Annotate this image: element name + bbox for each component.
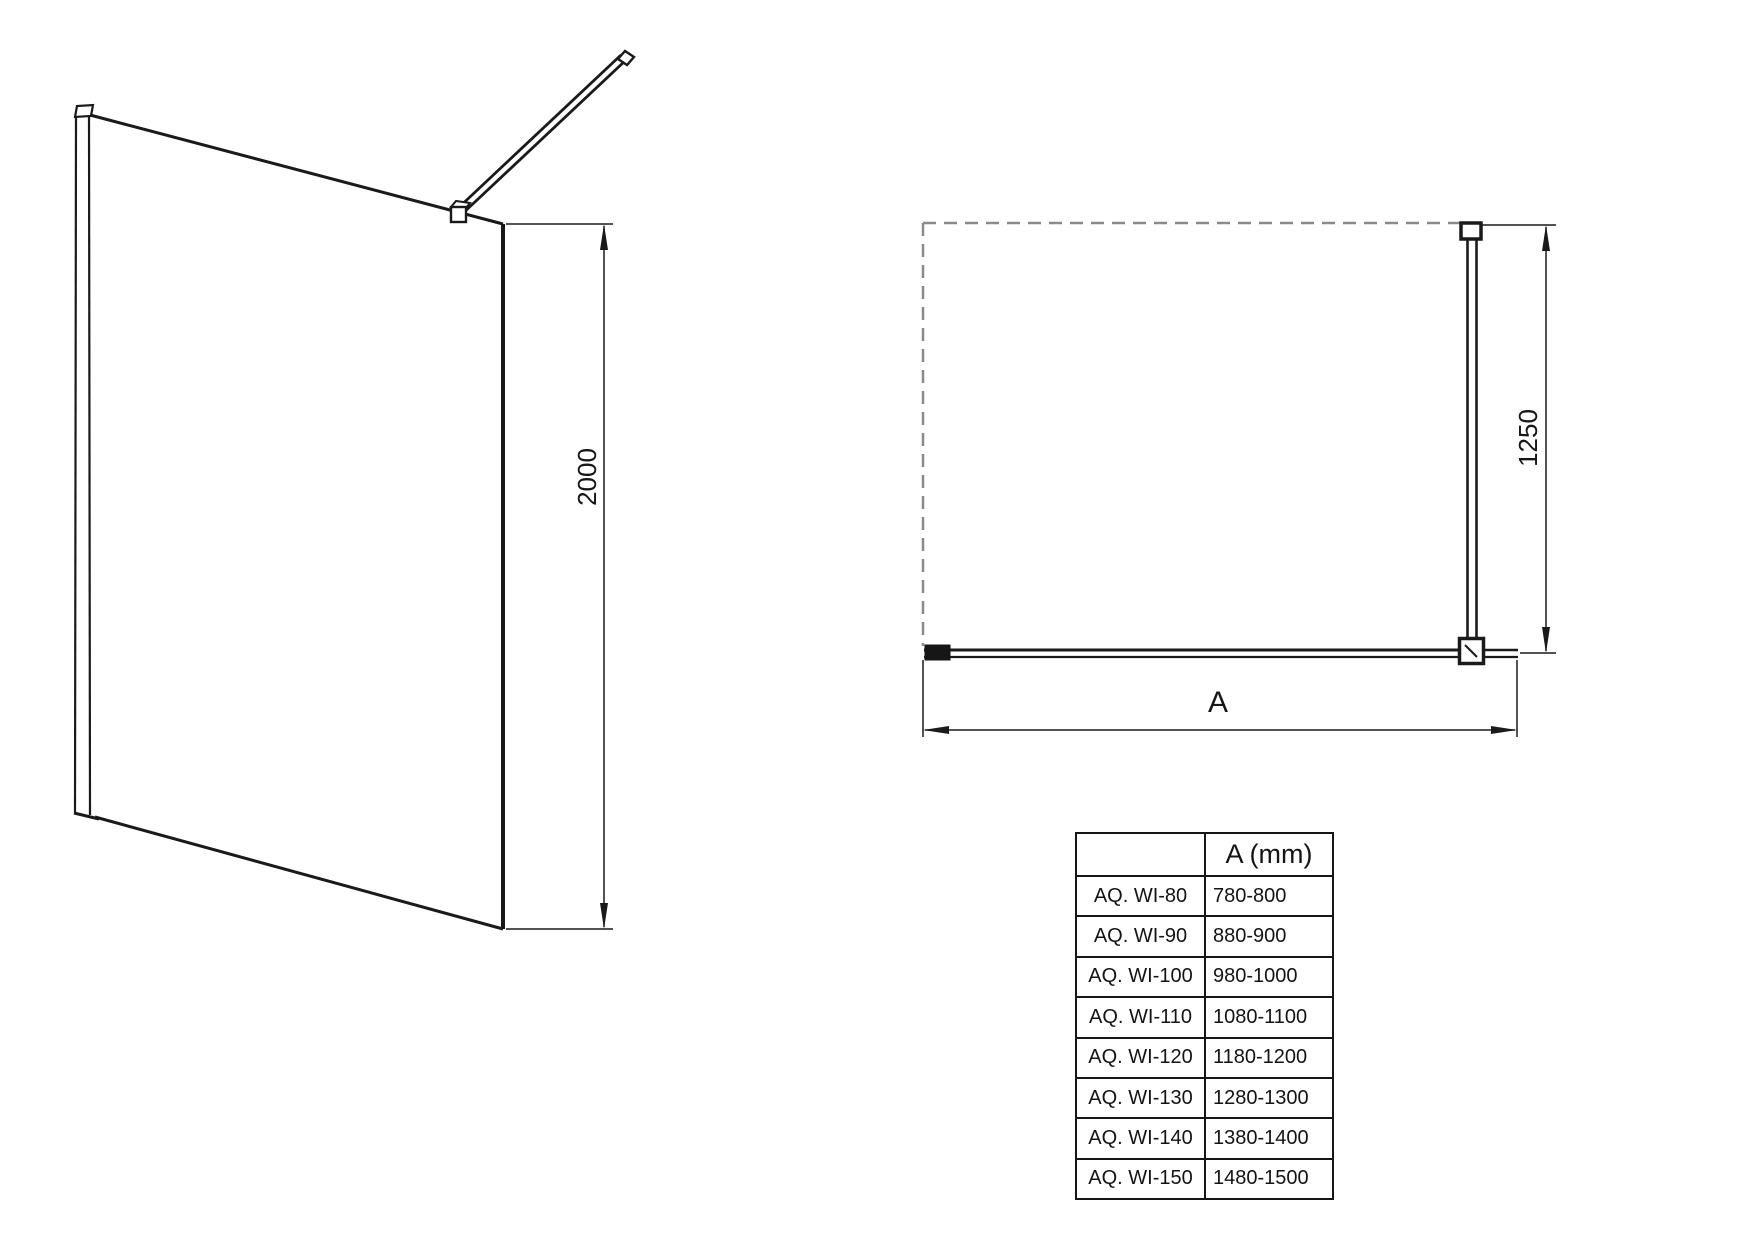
dim1250-arrow-down (1542, 627, 1550, 653)
dim1250-label: 1250 (1513, 409, 1543, 467)
model-cell: AQ. WI-140 (1076, 1118, 1205, 1158)
range-cell: 1280-1300 (1205, 1078, 1333, 1118)
glass-bottom-edge (95, 817, 503, 929)
support-bar-upper-edge (455, 55, 621, 211)
dim2000-label: 2000 (572, 448, 602, 506)
dimA-arrow-right (1491, 726, 1517, 734)
dim2000-arrow-up (600, 224, 608, 250)
plan-bar-top-cap (1461, 223, 1481, 239)
range-cell: 1080-1100 (1205, 997, 1333, 1037)
table-row: AQ. WI-90 880-900 (1076, 916, 1333, 956)
model-cell: AQ. WI-110 (1076, 997, 1205, 1037)
range-cell: 980-1000 (1205, 957, 1333, 997)
glass-top-edge (90, 115, 503, 224)
range-cell: 780-800 (1205, 876, 1333, 916)
dimA-arrow-left (923, 726, 949, 734)
support-bar-core (458, 57, 624, 213)
wall-profile (74, 105, 99, 819)
size-table: A (mm) AQ. WI-80 780-800 AQ. WI-90 880-9… (1075, 832, 1334, 1200)
side-view: 2000 (74, 51, 634, 929)
plan-view: 1250 A (923, 223, 1556, 737)
range-cell: 1380-1400 (1205, 1118, 1333, 1158)
dim1250-arrow-up (1542, 225, 1550, 251)
table-row: AQ. WI-120 1180-1200 (1076, 1038, 1333, 1078)
support-bar-lower-edge (460, 60, 626, 216)
table-header-model (1076, 833, 1205, 876)
model-cell: AQ. WI-100 (1076, 957, 1205, 997)
dimension-1250: 1250 (1482, 225, 1556, 653)
table-row: AQ. WI-110 1080-1100 (1076, 997, 1333, 1037)
model-cell: AQ. WI-130 (1076, 1078, 1205, 1118)
model-cell: AQ. WI-80 (1076, 876, 1205, 916)
range-cell: 1180-1200 (1205, 1038, 1333, 1078)
dimA-label: A (1208, 686, 1228, 719)
dimension-a: A (923, 660, 1517, 737)
table-row: AQ. WI-80 780-800 (1076, 876, 1333, 916)
glass-connector (451, 207, 466, 222)
plan-support-bar (1460, 223, 1484, 664)
table-row: AQ. WI-140 1380-1400 (1076, 1118, 1333, 1158)
table-row: AQ. WI-130 1280-1300 (1076, 1078, 1333, 1118)
range-cell: 1480-1500 (1205, 1159, 1333, 1199)
technical-drawing-canvas: 2000 (0, 0, 1755, 1240)
model-cell: AQ. WI-150 (1076, 1159, 1205, 1199)
plan-glass-panel (924, 645, 1518, 660)
model-cell: AQ. WI-120 (1076, 1038, 1205, 1078)
plan-wall-bracket (925, 645, 950, 660)
model-cell: AQ. WI-90 (1076, 916, 1205, 956)
table-row: AQ. WI-100 980-1000 (1076, 957, 1333, 997)
glass-panel (90, 115, 503, 929)
support-bar (451, 51, 634, 222)
table-header-row: A (mm) (1076, 833, 1333, 876)
dim2000-arrow-down (600, 903, 608, 929)
table-header-a-mm: A (mm) (1205, 833, 1333, 876)
dimension-2000: 2000 (506, 224, 613, 929)
table-row: AQ. WI-150 1480-1500 (1076, 1159, 1333, 1199)
wall-profile-left-edge (75, 116, 76, 813)
shower-area-dashed-outline (923, 223, 1461, 646)
wall-profile-right-edge (89, 117, 90, 815)
range-cell: 880-900 (1205, 916, 1333, 956)
